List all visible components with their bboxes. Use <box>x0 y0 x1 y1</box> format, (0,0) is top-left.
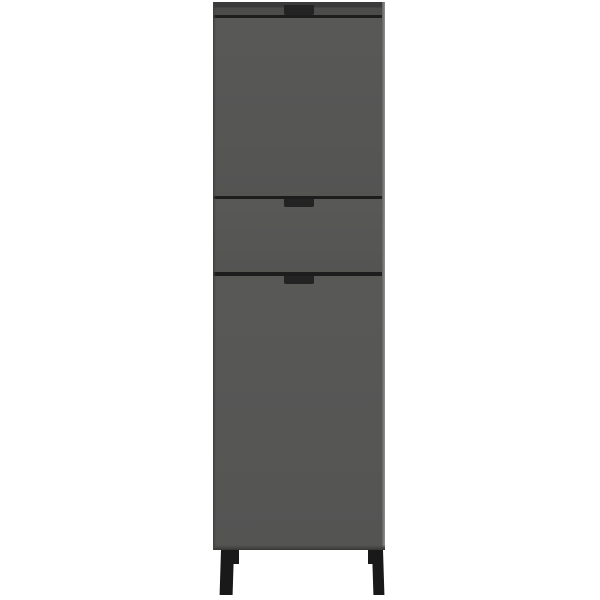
left-edge-shadow <box>213 2 216 550</box>
front-right-leg <box>367 550 383 595</box>
upper-door-handle <box>284 5 314 15</box>
right-leg-stem <box>372 550 384 595</box>
lower-door <box>213 276 385 547</box>
gap-under-top-panel <box>213 15 385 18</box>
drawer-handle <box>284 199 314 207</box>
lower-door-handle <box>284 276 314 284</box>
upper-door <box>213 18 385 196</box>
product-photo <box>0 0 600 600</box>
drawer-front <box>213 199 385 272</box>
left-leg-stem <box>220 550 234 595</box>
gap-above-lower-door <box>213 272 385 276</box>
cabinet-body <box>213 2 385 550</box>
right-edge-highlight <box>382 2 385 550</box>
